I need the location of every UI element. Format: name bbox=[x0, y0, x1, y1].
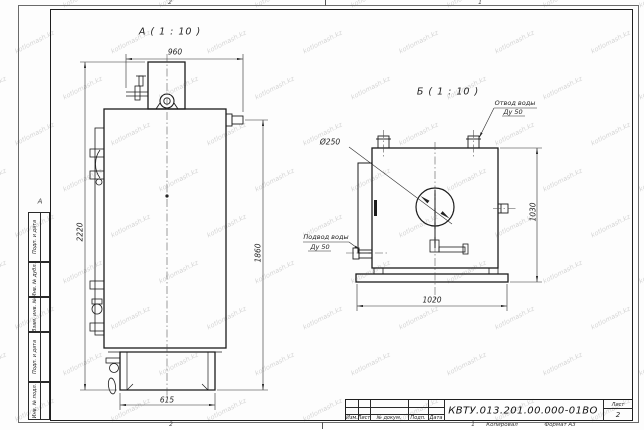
col-podp: Подп. bbox=[410, 415, 425, 421]
dim-1020: 1020 bbox=[422, 296, 441, 304]
col-izm: Изм. bbox=[346, 415, 358, 421]
doc-number: КВТУ.013.201.00.000-01ВО bbox=[448, 406, 598, 417]
watermark-text: kotlomash.kz bbox=[0, 167, 8, 194]
zone-top-1: 1 bbox=[478, 0, 482, 6]
side-fields-divider bbox=[40, 212, 41, 420]
sheet-inner-frame bbox=[50, 9, 633, 421]
watermark-text: kotlomash.kz bbox=[0, 0, 8, 9]
view-a-label: А ( 1 : 10 ) bbox=[139, 27, 201, 37]
dim-1030: 1030 bbox=[529, 202, 537, 221]
title-block: Изм. Лист № докум. Подп. Дата КВТУ.013.2… bbox=[345, 399, 633, 421]
zone-tick-bottom bbox=[322, 422, 323, 429]
footer-copy: Копировал bbox=[486, 422, 517, 428]
col-data: Дата bbox=[430, 415, 443, 421]
sheet-number: 2 bbox=[616, 411, 620, 419]
outlet-callout-line2: Ду 50 bbox=[503, 109, 522, 116]
zone-tick-top bbox=[325, 0, 326, 6]
watermark-text: kotlomash.kz bbox=[0, 259, 8, 286]
zone-row-letter: А bbox=[38, 199, 43, 206]
field-podp-data-2: Подп. и дата bbox=[28, 332, 50, 382]
outlet-callout-line1: Отвод воды bbox=[495, 100, 536, 107]
inlet-callout-line1: Подвод воды bbox=[303, 234, 348, 241]
dim-615: 615 bbox=[160, 396, 174, 404]
col-docum: № докум. bbox=[377, 415, 402, 421]
view-b-label: Б ( 1 : 10 ) bbox=[417, 87, 479, 97]
field-vzam-inv: Взам. инв. № bbox=[28, 297, 50, 332]
dim-1860: 1860 bbox=[254, 243, 262, 262]
field-inv-podl: Инв. № подл. bbox=[28, 382, 50, 420]
watermark-text: kotlomash.kz bbox=[0, 75, 8, 102]
col-list: Лист bbox=[358, 415, 371, 421]
dim-2220: 2220 bbox=[76, 222, 84, 241]
dim-960: 960 bbox=[168, 48, 182, 56]
watermark-text: kotlomash.kz bbox=[0, 351, 8, 378]
zone-bottom-2: 2 bbox=[169, 422, 173, 428]
inlet-callout-line2: Ду 50 bbox=[310, 244, 329, 251]
zone-bottom-1: 1 bbox=[471, 422, 475, 428]
field-inv-dubl: Инв. № дубл. bbox=[28, 262, 50, 297]
sheet-label: Лист bbox=[612, 402, 625, 408]
footer-format: Формат А3 bbox=[544, 422, 575, 428]
field-podp-data-1: Подп. и дата bbox=[28, 212, 50, 262]
dim-dia-250: Ø250 bbox=[320, 138, 340, 146]
drawing-sheet: kotlomash.kzkotlomash.kzkotlomash.kzkotl… bbox=[0, 0, 644, 430]
zone-top-2: 2 bbox=[168, 0, 172, 6]
